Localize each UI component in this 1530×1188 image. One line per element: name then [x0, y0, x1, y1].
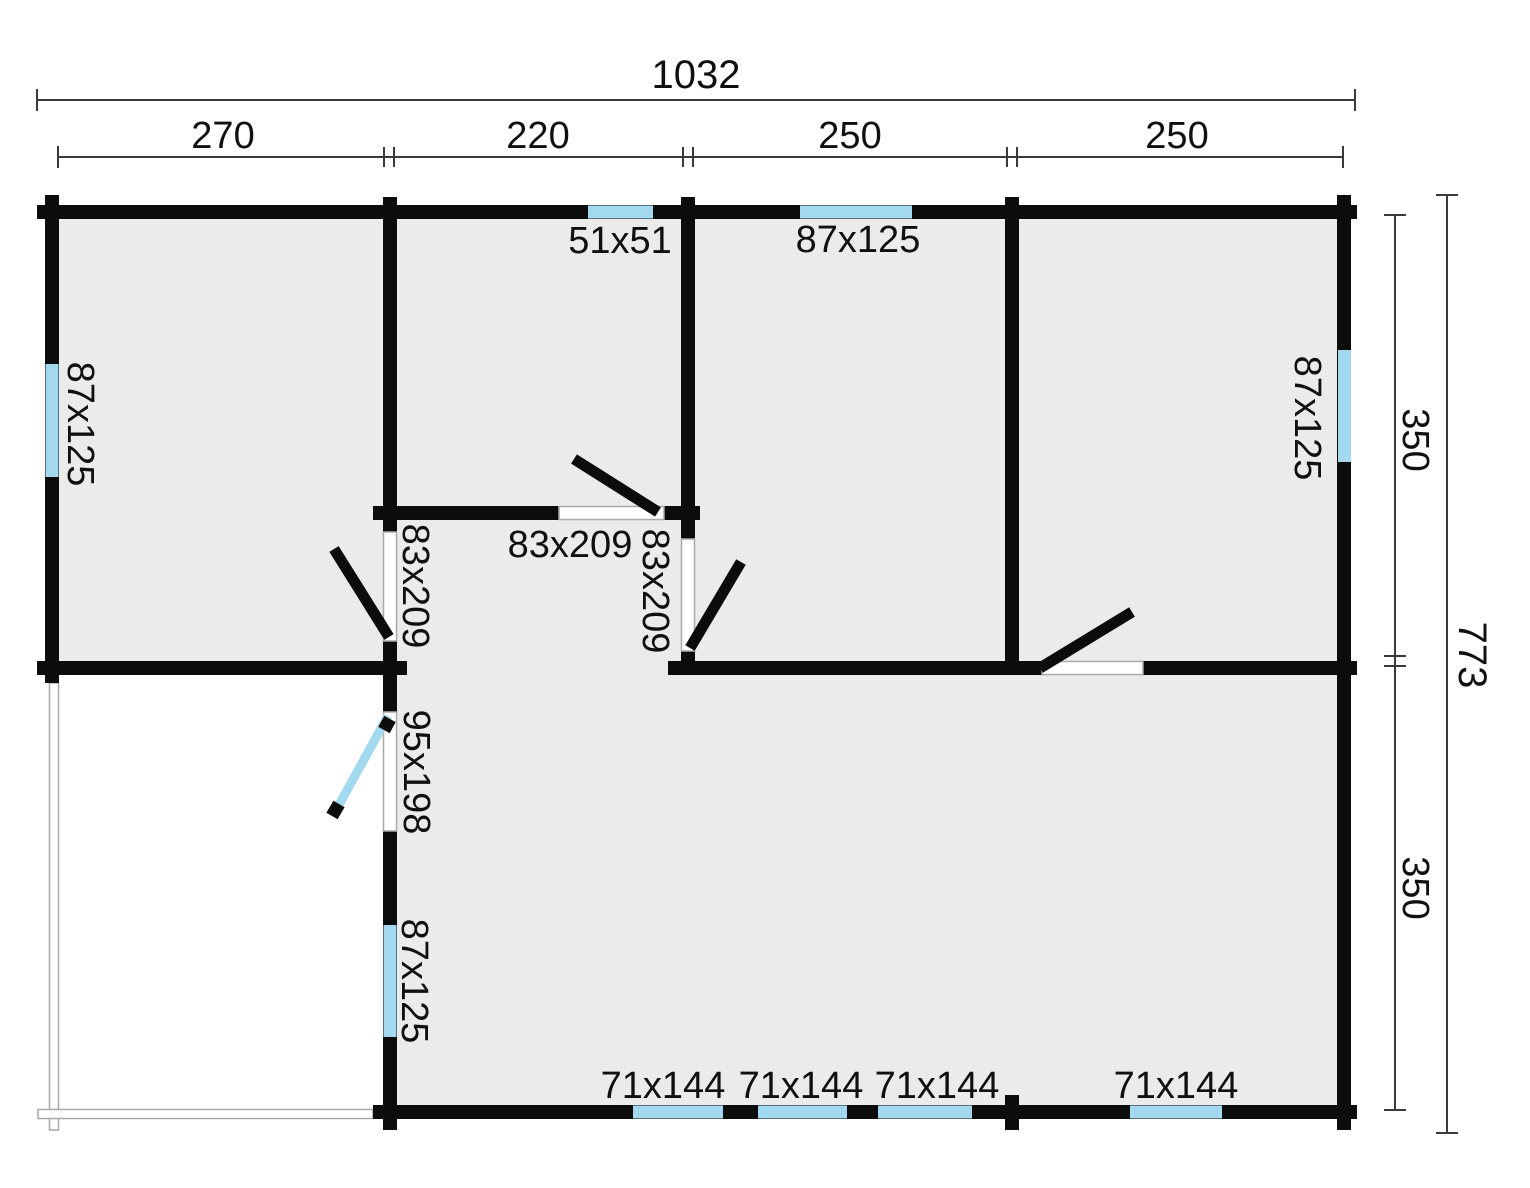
interior-wall-c [1005, 197, 1019, 675]
window-left-87x125 [46, 364, 59, 477]
label-overall-width: 1032 [652, 53, 741, 97]
label-window-lowerleft-87x125: 87x125 [393, 919, 435, 1044]
label-door-glass-95x198: 95x198 [395, 710, 437, 835]
window-right-87x125 [1338, 350, 1351, 462]
window-bottom-71x144-a [633, 1106, 723, 1119]
label-window-51x51: 51x51 [568, 220, 672, 262]
label-seg-350-upper: 350 [1394, 408, 1436, 471]
room-fill-lower-room [397, 661, 1337, 1105]
label-seg-220: 220 [506, 115, 569, 157]
room-fill-upper-band [59, 219, 1337, 675]
window-top-51x51 [588, 206, 653, 219]
label-window-71x144-d: 71x144 [1114, 1065, 1239, 1107]
window-top-87x125 [800, 206, 912, 219]
interior-wall-c-bottom-post [1005, 1095, 1019, 1130]
label-window-71x144-b: 71x144 [739, 1065, 864, 1107]
middle-wall-left-segment [37, 661, 407, 675]
window-bottom-71x144-d [1130, 1106, 1222, 1119]
label-seg-350-lower: 350 [1394, 856, 1436, 919]
terrace-edge-left [50, 683, 59, 1130]
label-window-71x144-a: 71x144 [601, 1065, 726, 1107]
label-window-right-87x125: 87x125 [1286, 356, 1328, 481]
glass-door-hinge-cap [384, 719, 390, 730]
label-door-left-83x209: 83x209 [394, 524, 436, 649]
label-seg-270: 270 [191, 115, 254, 157]
label-seg-250-b: 250 [1145, 115, 1208, 157]
outer-wall-top [37, 205, 1357, 219]
dim-line-right-segments [1384, 215, 1406, 1110]
terrace-outline [38, 683, 373, 1130]
label-seg-250-a: 250 [818, 115, 881, 157]
label-window-left-87x125: 87x125 [59, 362, 101, 487]
door-leaf-glass-95x198 [335, 716, 388, 812]
label-overall-height: 773 [1450, 622, 1494, 689]
window-bottom-71x144-c [878, 1106, 972, 1119]
label-door-mid-83x209: 83x209 [508, 524, 633, 566]
floorplan-svg: 1032 270 220 250 250 51x51 87x125 83x209… [0, 0, 1530, 1188]
label-window-71x144-c: 71x144 [875, 1065, 1000, 1107]
floorplan-page: 1032 270 220 250 250 51x51 87x125 83x209… [0, 0, 1530, 1188]
label-door-right-83x209: 83x209 [634, 529, 676, 654]
label-window-top-87x125: 87x125 [796, 219, 921, 261]
glass-door-end-cap [332, 804, 339, 816]
terrace-edge-bottom [38, 1110, 373, 1119]
window-bottom-71x144-b [758, 1106, 847, 1119]
